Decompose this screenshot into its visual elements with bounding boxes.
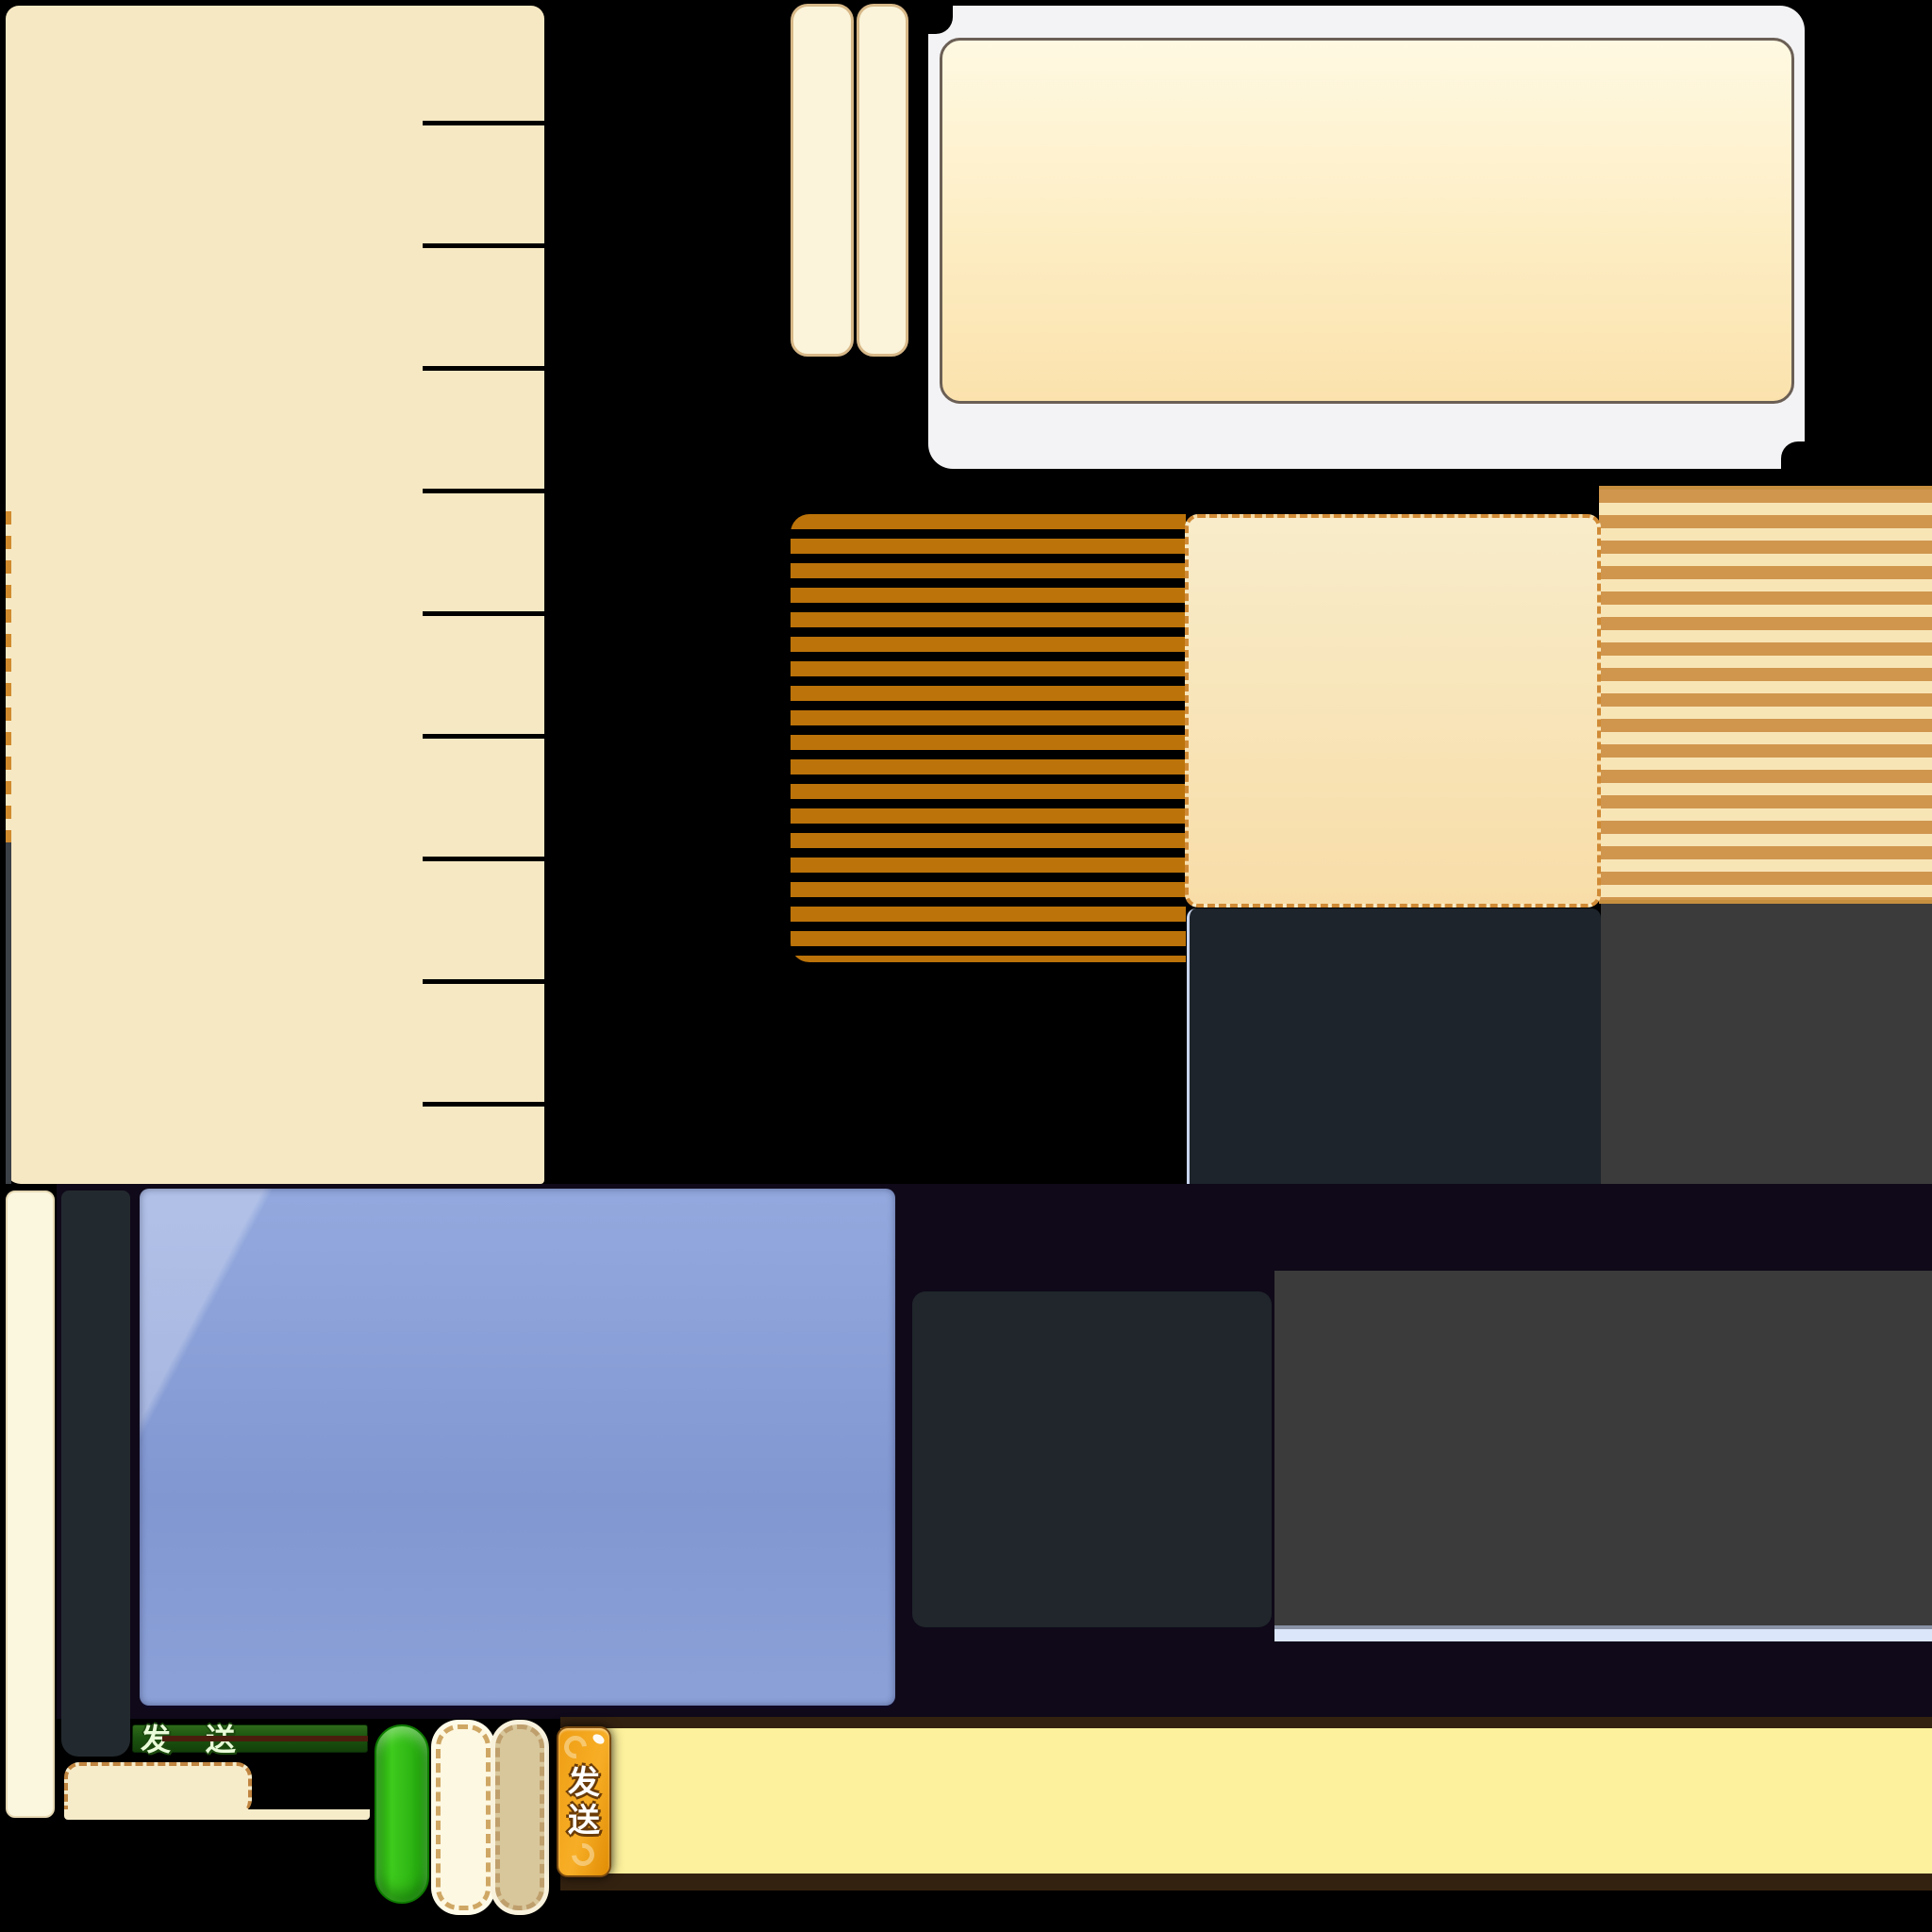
divider-line xyxy=(162,1736,368,1741)
scrollbar-track-dark[interactable] xyxy=(61,1191,130,1757)
pill-button-green[interactable] xyxy=(375,1724,429,1904)
striped-zone-cream xyxy=(1599,486,1932,904)
send-button[interactable]: 发 送 xyxy=(557,1726,611,1877)
chat-pane-gray-bottom xyxy=(1274,1271,1932,1641)
ornament-swirl-bottom-icon xyxy=(567,1839,599,1871)
ruled-grid-panel xyxy=(6,6,544,1184)
blue-chat-panel xyxy=(140,1189,895,1706)
ruler-tick-marks xyxy=(423,121,544,1108)
scrollbar-thumb-wide[interactable] xyxy=(791,4,854,357)
dashed-edge-strip xyxy=(6,511,11,848)
chat-input-bar[interactable] xyxy=(560,1717,1932,1890)
dashed-drop-panel xyxy=(1185,514,1601,908)
input-tab-underline xyxy=(64,1809,370,1820)
send-button-char-bottom: 送 xyxy=(568,1803,600,1839)
gloss-highlight-icon xyxy=(591,1732,607,1746)
input-tab-dashed[interactable] xyxy=(64,1762,252,1813)
gray-edge-strip xyxy=(6,842,11,1184)
scrollbar-thumb-narrow[interactable] xyxy=(857,4,908,357)
striped-zone-dark xyxy=(791,514,1186,962)
texture-atlas-stage: 发 送 发 送 xyxy=(0,0,1932,1932)
send-button-char-top: 发 xyxy=(568,1765,600,1801)
scrollbar-track-cream[interactable] xyxy=(6,1191,55,1818)
ornament-swirl-top-icon xyxy=(559,1731,591,1763)
pill-button-cream-dashed[interactable] xyxy=(436,1724,491,1910)
window-inner-panel xyxy=(940,38,1794,404)
pill-button-tan-dashed[interactable] xyxy=(495,1724,544,1910)
chat-pane-slate-bottom xyxy=(912,1291,1272,1627)
